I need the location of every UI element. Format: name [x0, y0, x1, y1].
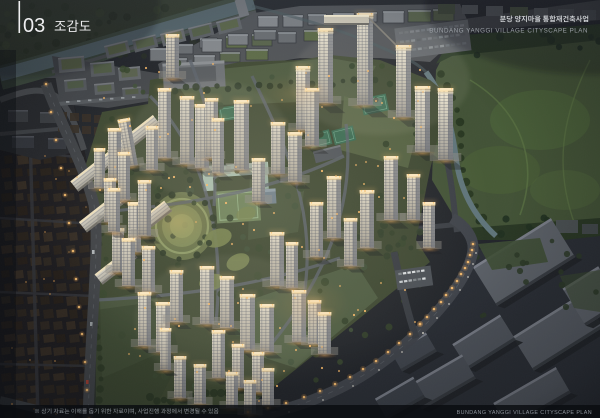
svg-text:BUNDANG YANGGI VILLAGE CITYSCA: BUNDANG YANGGI VILLAGE CITYSCAPE PLAN: [457, 410, 592, 416]
svg-text:BUNDANG YANGGI VILLAGE CITYSCA: BUNDANG YANGGI VILLAGE CITYSCAPE PLAN: [429, 28, 588, 35]
svg-text:03: 03: [23, 15, 45, 37]
